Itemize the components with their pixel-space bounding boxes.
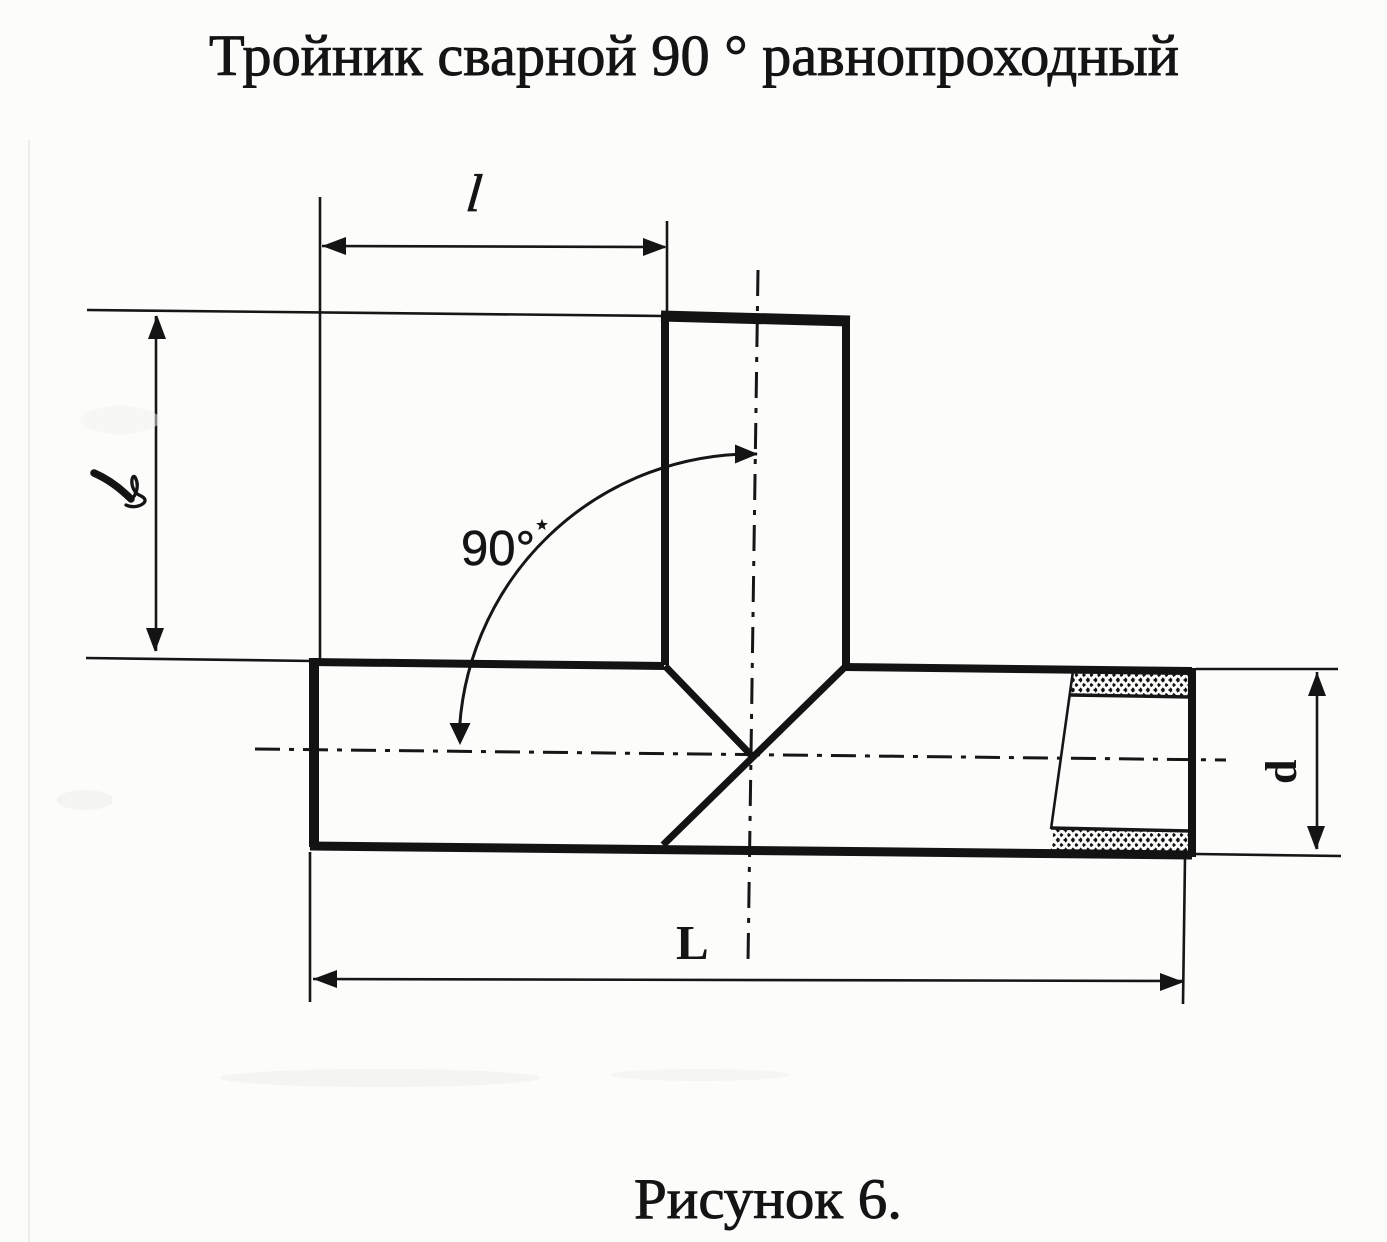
svg-text:90°: 90°: [461, 522, 535, 576]
svg-text:L: L: [676, 915, 709, 970]
svg-text:d: d: [1257, 760, 1306, 784]
svg-text:Рисунок 6.: Рисунок 6.: [634, 1168, 902, 1231]
svg-text:Тройник сварной 90 ° равнопрох: Тройник сварной 90 ° равнопроходный: [209, 23, 1179, 88]
